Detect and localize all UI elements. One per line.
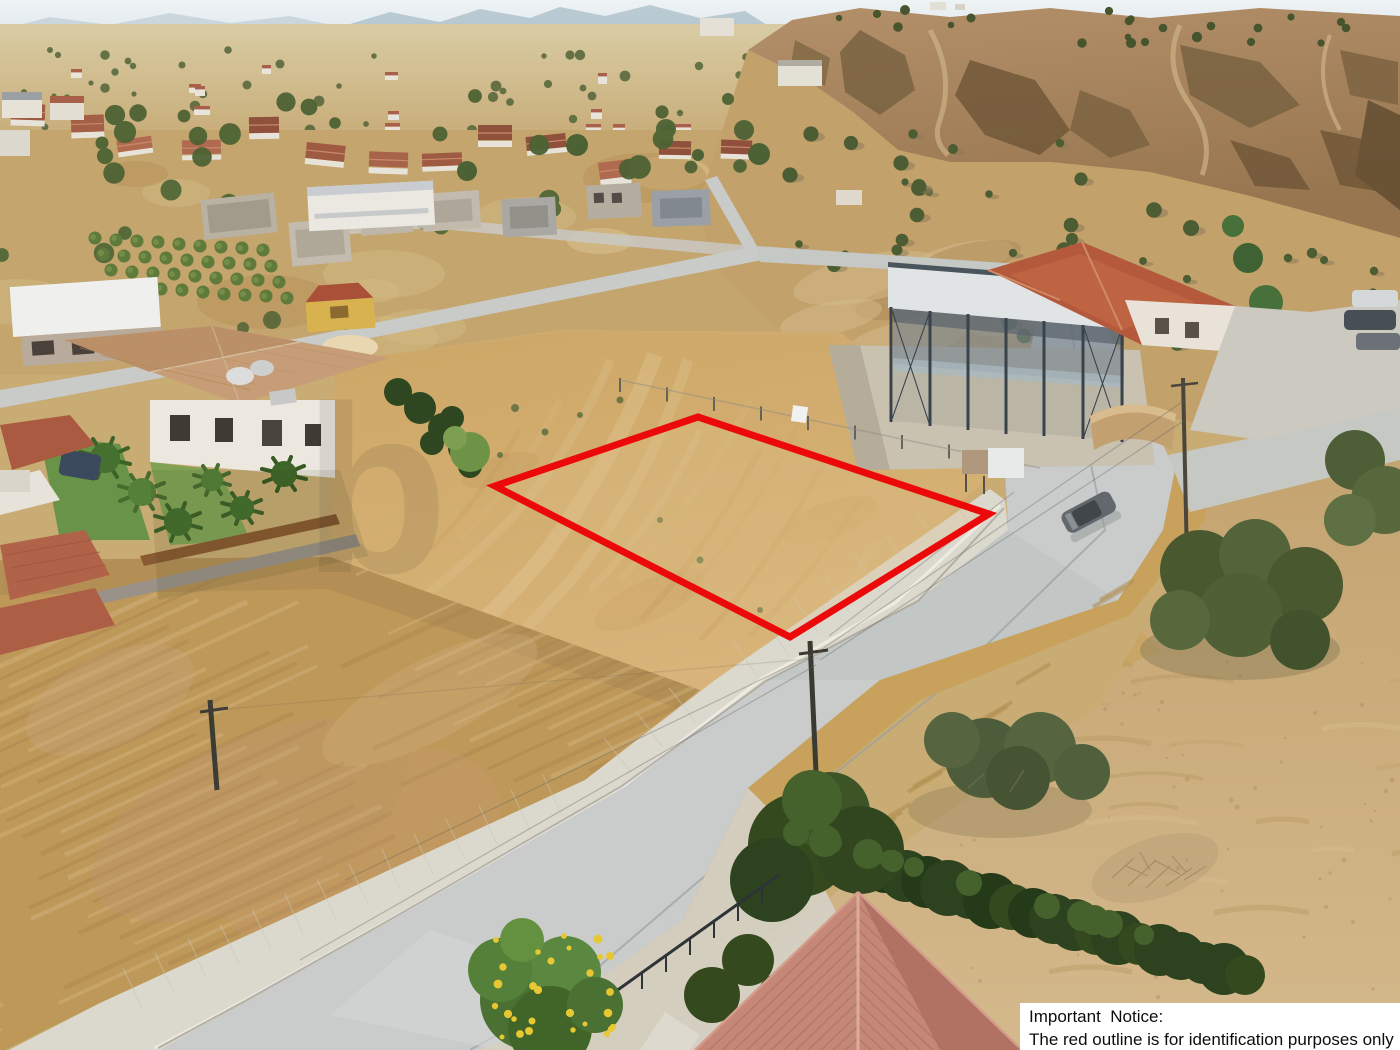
svg-text:b: b bbox=[303, 358, 448, 623]
svg-text:Important Notice:: Important Notice: bbox=[1029, 1007, 1163, 1026]
svg-text:The red outline is for identif: The red outline is for identification pu… bbox=[1029, 1030, 1394, 1049]
